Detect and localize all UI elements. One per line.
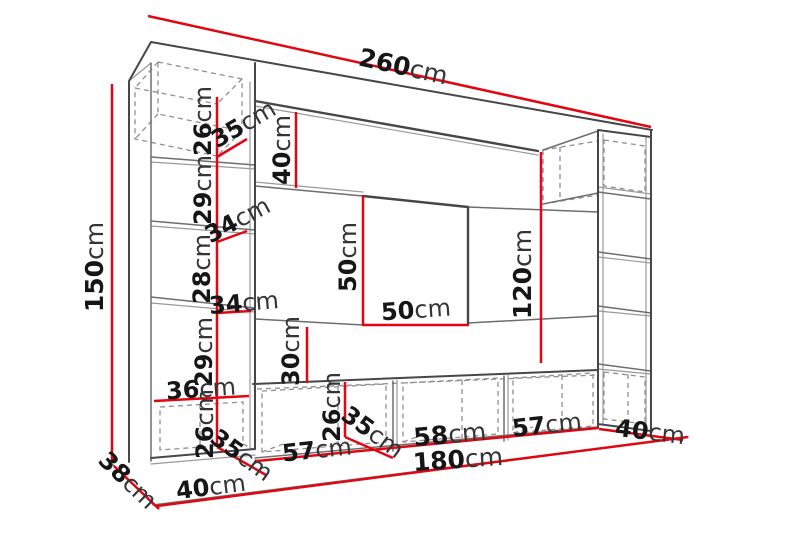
dim-label-bench-height: 26cm (318, 372, 346, 442)
diagram-canvas: 260cm150cm26cm35cm40cm29cm34cm28cm34cm29… (0, 0, 800, 533)
dim-label-top-panel-height: 40cm (268, 115, 296, 185)
dim-label-unit-depth: 38cm (93, 446, 163, 515)
dim-label-tv-space-height: 50cm (334, 222, 362, 292)
tv-panel-edges (255, 101, 538, 324)
dim-label-total-height: 150cm (80, 222, 109, 312)
dim-label-tv-space-width: 50cm (380, 294, 452, 327)
dim-label-top-cabinet-height: 26cm (189, 86, 217, 156)
dim-label-right-column-height: 120cm (508, 229, 537, 319)
dim-label-benches-total-width: 180cm (412, 442, 504, 477)
dimension-labels: 260cm150cm26cm35cm40cm29cm34cm28cm34cm29… (80, 43, 687, 515)
dim-label-shelf-gap-1: 29cm (189, 155, 217, 225)
dim-label-shelf-depth-2: 34cm (208, 286, 280, 320)
dim-label-bench-3-width: 57cm (511, 407, 584, 442)
dim-label-mid-panel-height: 30cm (277, 316, 305, 386)
furniture-dimension-diagram: 260cm150cm26cm35cm40cm29cm34cm28cm34cm29… (0, 0, 800, 533)
dim-label-total-width: 260cm (356, 43, 450, 91)
dim-label-left-column-width: 40cm (174, 469, 247, 505)
